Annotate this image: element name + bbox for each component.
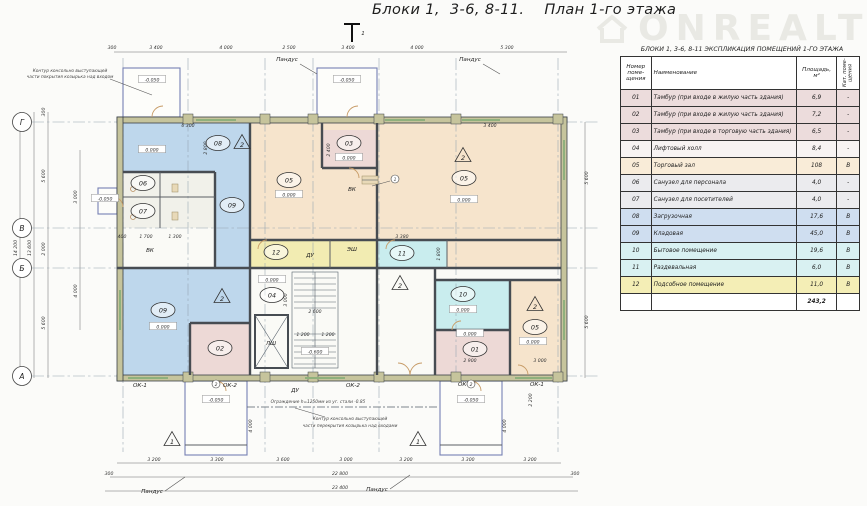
room-number-cell: 11 [621,260,652,277]
note-text: части перекрытия козырька над входами [303,424,398,429]
room-name-cell: Тамбур (при входе в жилую часть здания) [651,107,796,124]
room-area-cell: 11,0 [796,277,837,294]
plan-label: Пандус [276,57,298,63]
table-row: 07Санузел для посетителей4,0- [621,192,860,209]
table-row: 02Тамбур (при входе в жилую часть здания… [621,107,860,124]
elevation-label: 0.000 [526,339,539,345]
room-name-cell: Лифтовый холл [651,141,796,158]
elevation-label: 0.000 [265,277,278,283]
grid-axis-label: А [18,372,24,381]
room-number-cell: 02 [621,107,652,124]
col-header-area: Площадь, м² [796,57,837,90]
room-category-cell: В [837,226,860,243]
door-marker-number: 1 [394,177,397,183]
table-row: 12Подсобное помещение11,0В [621,277,860,294]
plan-label: Пандус [141,489,163,495]
dimension-label: 3 400 [149,45,162,51]
total-empty-num [621,294,652,311]
dimension-label: 2 900 [463,358,476,364]
room-category-cell: - [837,124,860,141]
dimension-label: 6 300 [181,123,194,129]
table-row: 03Тамбур (при входе в торговую часть зда… [621,124,860,141]
dimension-label: 1 700 [139,234,152,240]
dimension-label: 3 600 [276,457,289,463]
room-number: 09 [228,201,236,209]
plan-label: ЛШ [265,341,276,347]
room-area-cell: 6,0 [796,260,837,277]
dimension-label: 5 300 [500,45,513,51]
total-area: 243,2 [796,294,837,311]
elevation-label: -0.050 [145,77,160,83]
room-category-cell: - [837,175,860,192]
dimension-label: 23 400 [332,485,348,491]
room-number-cell: 03 [621,124,652,141]
room-category-cell: В [837,209,860,226]
marker-number: 2 [398,282,402,290]
dimension-label: 4 000 [248,419,254,432]
dimension-label: 2 000 [41,242,47,255]
elevation-label: 0.000 [342,155,355,161]
marker-number: 2 [240,141,244,149]
dimension-label: 3 380 [395,234,408,240]
elevation-label: -0.050 [98,196,113,202]
dimension-label: 3 300 [461,457,474,463]
room-number: 06 [139,179,147,187]
room-number: 08 [214,139,222,147]
floor-plan: 3003 4004 0002 5003 4004 0005 3003 2003 … [0,0,612,506]
dimension-label: 2 600 [308,309,321,315]
table-row: 09Кладовая45,0В [621,226,860,243]
room-category-cell: - [837,192,860,209]
room-area-cell: 19,6 [796,243,837,260]
room-area-cell: 7,2 [796,107,837,124]
total-empty-name [651,294,796,311]
room-area-cell: 6,9 [796,90,837,107]
room-name-cell: Тамбур (при входе в торговую часть здани… [651,124,796,141]
room-area-cell: 4,0 [796,192,837,209]
table-row: 01Тамбур (при входе в жилую часть здания… [621,90,860,107]
dimension-label: 2 500 [282,45,295,51]
room-number: 09 [159,306,167,314]
room-number: 05 [531,323,539,331]
col-header-category-text: Кат. поме- щения [843,57,854,89]
plan-label: Пандус [459,57,481,63]
elevation-label: -0.050 [340,77,355,83]
elevation-label: 0.000 [145,147,158,153]
dimension-label: 300 [108,45,117,51]
dimension-label: 4 000 [410,45,423,51]
room-name-cell: Подсобное помещение [651,277,796,294]
col-header-name: Наименование [651,57,796,90]
dimension-label: 1 200 [296,332,309,338]
room-area-cell: 45,0 [796,226,837,243]
room-name-cell: Санузел для персонала [651,175,796,192]
room-number-cell: 09 [621,226,652,243]
dimension-label: 3 200 [147,457,160,463]
room-number-cell: 10 [621,243,652,260]
room-category-cell: - [837,90,860,107]
room-number-cell: 04 [621,141,652,158]
dimension-label: 14 200 [13,240,19,256]
dimension-label: 3 400 [483,123,496,129]
note-text: Контур консольно выступающей [33,68,108,74]
room-number: 10 [459,290,467,298]
dimension-label: 1 800 [436,247,442,260]
plan-label: ОК-2 [223,383,237,389]
dimension-label: 1 300 [168,234,181,240]
room-number-cell: 12 [621,277,652,294]
grid-axis-label: Б [19,264,24,273]
dimension-label: 3 200 [523,457,536,463]
marker-number: 2 [533,303,537,311]
room-number: 05 [460,174,468,182]
marker-number: 2 [461,154,465,162]
room-area-cell: 108 [796,158,837,175]
room-category-cell: В [837,243,860,260]
note-text: Контур консольно выступающей [313,416,388,422]
dimension-label: 3 000 [339,457,352,463]
table-row: 08Загрузочная17,6В [621,209,860,226]
marker-number: 1 [170,438,174,446]
explication-table: Номер поме- щения Наименование Площадь, … [620,56,860,311]
room-number-cell: 08 [621,209,652,226]
dimension-label: 5 600 [584,315,590,328]
grid-axis-label: В [19,224,24,233]
plan-label: ДУ [290,388,299,394]
elevation-label: -0.050 [209,397,224,403]
dimension-label: 3 000 [73,190,79,203]
room-name-cell: Бытовое помещение [651,243,796,260]
total-empty-cat [837,294,860,311]
section-mark [344,24,360,42]
dimension-label: 300 [41,108,47,117]
table-row: 11Раздевальная6,0В [621,260,860,277]
table-row: 05Торговый зал108В [621,158,860,175]
explication-panel: БЛОКИ 1, 3-6, 8-11 ЭКСПЛИКАЦИЯ ПОМЕЩЕНИЙ… [620,46,864,311]
door-marker-number: 2 [215,382,218,388]
note-text: части покрытия козырька над входом [27,75,114,80]
elevation-label: 0.000 [156,324,169,330]
room-number: 02 [216,344,224,352]
dimension-label: 5 600 [584,171,590,184]
col-header-category: Кат. поме- щения [837,57,860,90]
room-number-cell: 07 [621,192,652,209]
plan-label: Пандус [366,487,388,493]
dimension-label: 300 [105,471,114,477]
room-category-cell: В [837,158,860,175]
dimension-label: 2 400 [326,143,332,156]
table-row: 10Бытовое помещение19,6В [621,243,860,260]
room-area-cell: 4,0 [796,175,837,192]
header-row: Номер поме- щения Наименование Площадь, … [621,57,860,90]
explication-table-body: 01Тамбур (при входе в жилую часть здания… [621,90,860,294]
room-number: 01 [471,345,479,353]
room-category-cell: - [837,107,860,124]
plan-label: ВК [348,187,357,193]
elevation-label: -0.600 [308,349,323,355]
dimension-label: 4 000 [73,284,79,297]
room-number: 12 [272,248,280,256]
room-number: 11 [398,249,406,257]
dimension-label: 2 200 [528,393,534,406]
elevation-label: -0.050 [464,397,479,403]
room-number-cell: 05 [621,158,652,175]
dimension-label: 300 [571,471,580,477]
dimension-label: 22 800 [332,471,348,477]
door-marker-number: 2 [470,382,473,388]
dimension-label: 3 300 [210,457,223,463]
table-row: 06Санузел для персонала4,0- [621,175,860,192]
dimension-label: 5 600 [41,169,47,182]
room-name-cell: Кладовая [651,226,796,243]
room-number: 07 [139,207,147,215]
room-area-cell: 8,4 [796,141,837,158]
room-name-cell: Торговый зал [651,158,796,175]
drawing-title: Блоки 1, 3-6, 8-11. План 1-го этажа [372,2,676,18]
room-name-cell: Загрузочная [651,209,796,226]
dimension-label: 13 600 [27,240,33,256]
room-category-cell: В [837,277,860,294]
plan-label: ОК-1 [133,383,147,389]
marker-number: 1 [416,438,420,446]
room-number-cell: 06 [621,175,652,192]
marker-number: 2 [220,295,224,303]
dimension-label: 4 000 [219,45,232,51]
room-name-cell: Раздевальная [651,260,796,277]
dimension-label: 3 400 [341,45,354,51]
room-category-cell: В [837,260,860,277]
room-number: 05 [285,176,293,184]
plan-label: ОК-2 [346,383,360,389]
dimension-label: 5 600 [41,316,47,329]
room-number: 04 [268,291,276,299]
plan-label: 1 [361,31,365,37]
elevation-label: 0.000 [456,307,469,313]
room-number-cell: 01 [621,90,652,107]
dimension-label: 3 200 [399,457,412,463]
table-row: 04Лифтовый холл8,4- [621,141,860,158]
plan-label: ЭШ [346,247,357,253]
dimension-label: 1 200 [321,332,334,338]
note-text: Ограждение h=1250мм из уг. стали -0.85 [271,399,366,405]
room-name-cell: Санузел для посетителей [651,192,796,209]
elevation-label: 0.000 [463,331,476,337]
elevation-label: 0.000 [282,192,295,198]
room-category-cell: - [837,141,860,158]
col-header-number: Номер поме- щения [621,57,652,90]
plan-label: ВК [146,248,155,254]
dimension-label: 3 000 [533,358,546,364]
plan-label: ДУ [305,253,314,259]
dimension-label: 400 [118,234,127,240]
dimension-label: 4 000 [502,419,508,432]
total-row: 243,2 [621,294,860,311]
explication-title: БЛОКИ 1, 3-6, 8-11 ЭКСПЛИКАЦИЯ ПОМЕЩЕНИЙ… [620,46,864,53]
room-area-cell: 6,5 [796,124,837,141]
room-name-cell: Тамбур (при входе в жилую часть здания) [651,90,796,107]
plan-label: ОК-1 [530,382,544,388]
elevation-label: 0.000 [457,197,470,203]
room-area-cell: 17,6 [796,209,837,226]
room-number: 03 [345,139,353,147]
